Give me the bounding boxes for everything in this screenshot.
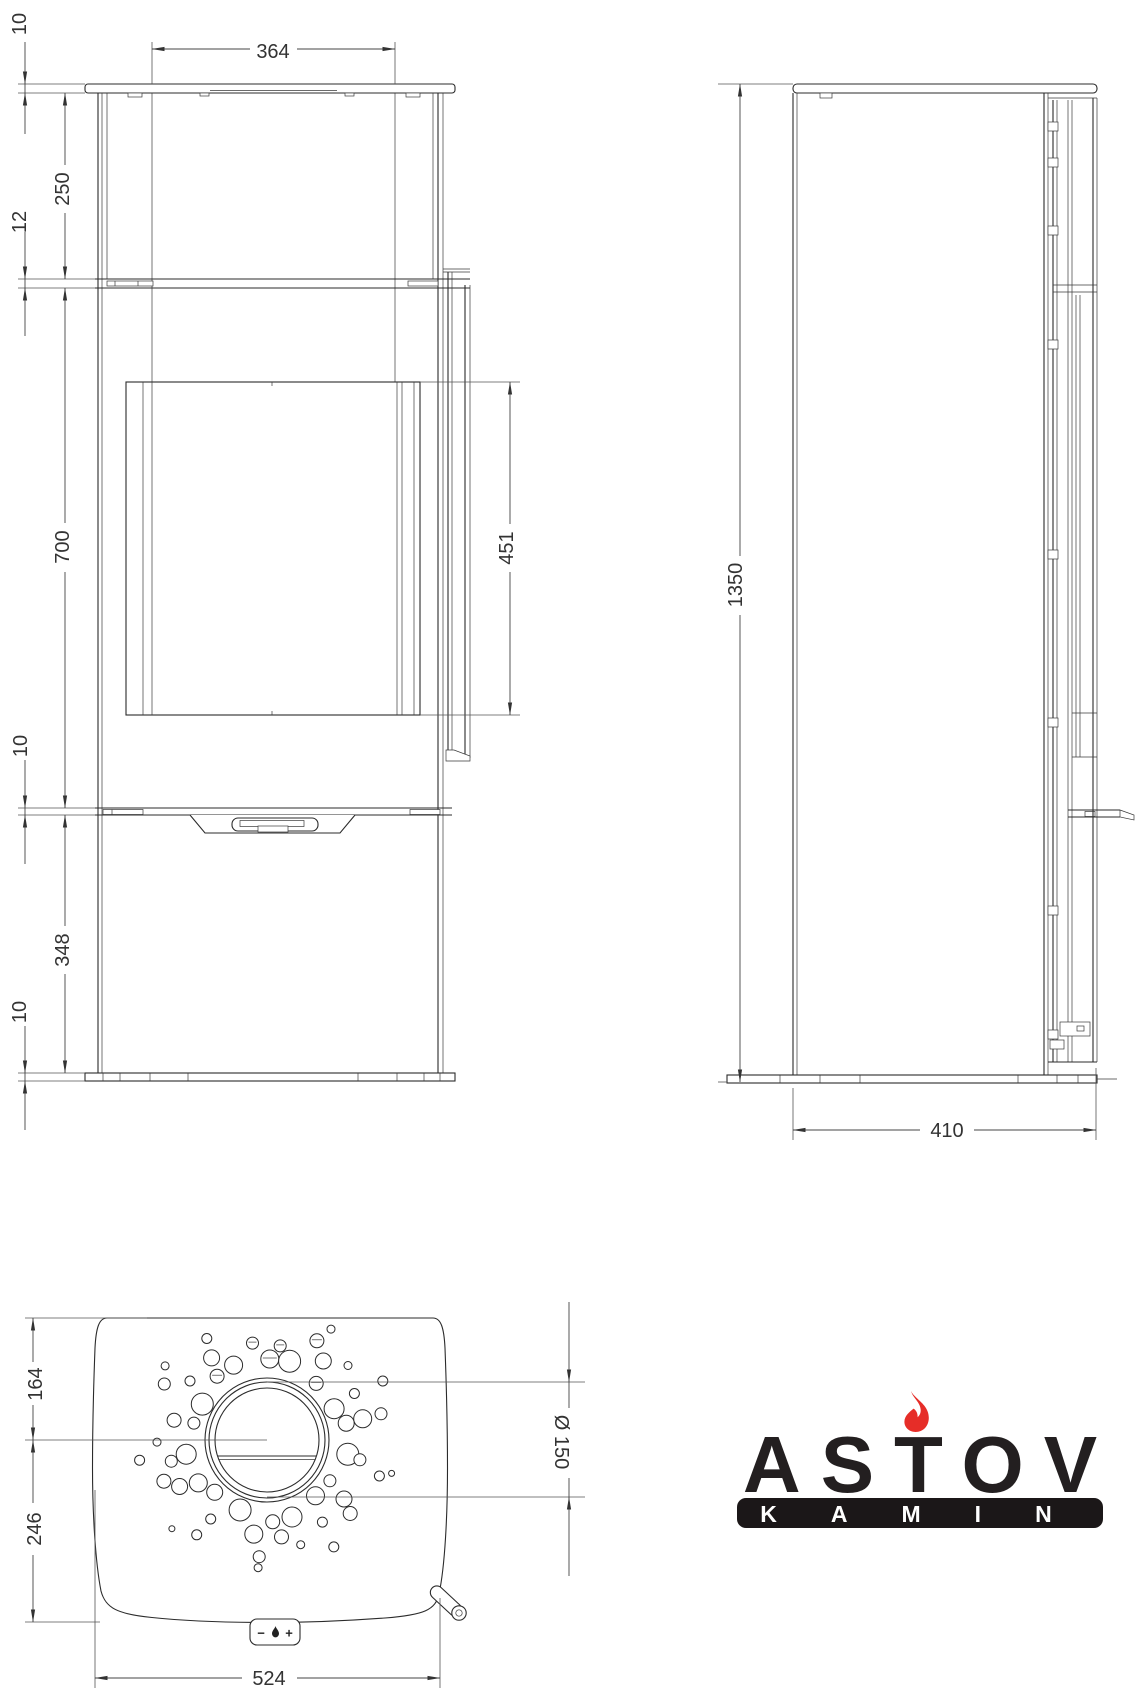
side-view: 1350 410 [718,84,1134,1142]
front-latch-band [95,808,452,833]
side-hinges [1048,122,1064,1049]
dim-front-latch: 10 [10,735,32,757]
dim-front-upper: 250 [52,172,74,205]
front-glass-window [126,382,420,715]
air-plus-icon: + [285,1626,293,1641]
dim-front-lower: 348 [52,933,74,966]
brand-subtitle: KAMIN [760,1501,1105,1527]
brand-wordmark: ASTOV [743,1420,1117,1509]
front-shelf-band [95,279,470,288]
dim-top-flue-diameter: Ø 150 [550,1415,572,1469]
side-top-plate [793,84,1097,98]
dim-top-center-to-back: 246 [24,1512,46,1545]
side-floor-plate [727,1075,1117,1083]
brand-logo: ASTOV KAMIN [737,1391,1117,1528]
technical-drawing-sheet: 10 364 250 12 700 451 [0,0,1138,1708]
dim-front-shelf: 12 [9,211,31,233]
dim-front-door: 700 [52,530,74,563]
dim-side-height: 1350 [725,563,747,608]
front-floor-plate [85,1073,455,1081]
dim-top-front-to-center: 164 [25,1367,47,1400]
dim-side-depth: 410 [930,1120,963,1142]
dim-front-base: 10 [9,1001,31,1023]
stove-dimension-drawing: 10 364 250 12 700 451 [0,0,1138,1708]
air-minus-icon: − [257,1626,265,1641]
front-view: 10 364 250 12 700 451 [9,13,520,1130]
air-control: − + [250,1619,300,1645]
side-body [793,93,1097,1075]
side-dimensions: 1350 410 [718,84,1096,1142]
front-door-edge [443,269,470,761]
dim-front-width: 364 [256,41,289,63]
front-top-plate [85,84,455,97]
dim-top-width: 524 [252,1668,285,1690]
dim-front-glass: 451 [496,531,518,564]
dim-front-top-plate: 10 [9,13,31,35]
top-view: − + 164 246 [24,1302,585,1690]
